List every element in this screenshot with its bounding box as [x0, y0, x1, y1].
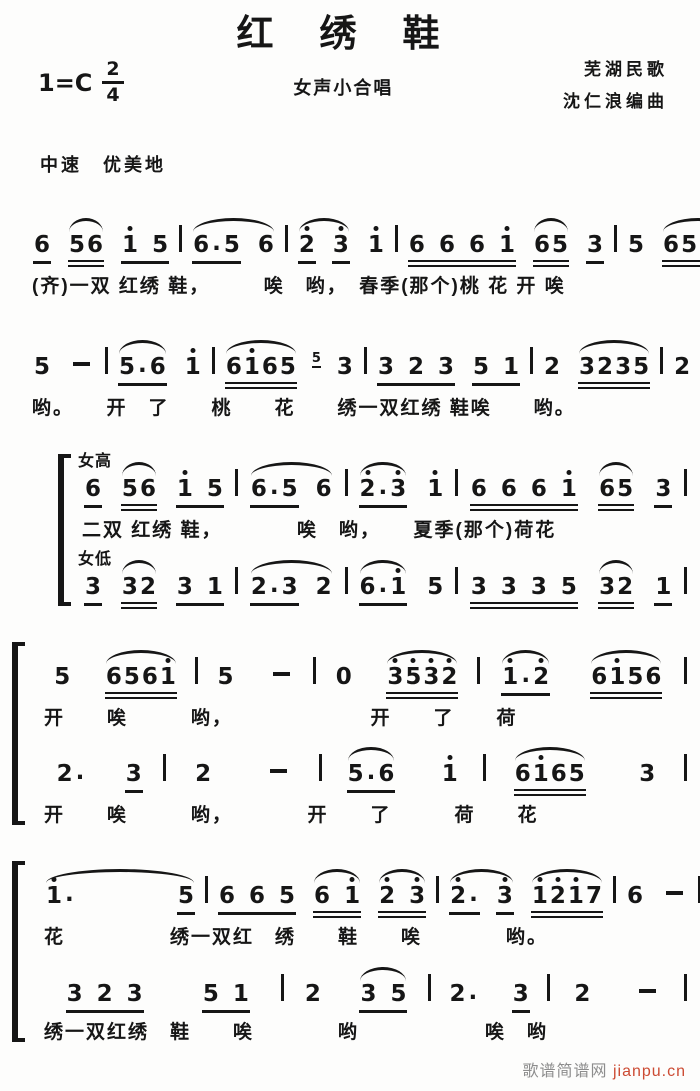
note-group: 6661 [470, 478, 578, 511]
note-digit: 3 [126, 763, 142, 786]
note-digit: 3 [360, 983, 376, 1006]
note-digit: 1 [244, 356, 260, 379]
note-digit: 1 [122, 234, 138, 257]
note-group: 1.2 [501, 666, 550, 696]
credits: 芜湖民歌 沈仁浪编曲 [563, 54, 668, 117]
slur-group: 6.56 [250, 478, 333, 508]
note-group: 51 [202, 983, 250, 1013]
note-group: 3 [586, 234, 604, 264]
note-digit: 1 [503, 356, 519, 379]
tempo-marking: 中速 优美地 [40, 151, 690, 177]
note-digit: 5 [627, 666, 643, 689]
note-digit: 2 [251, 576, 267, 599]
note-group: 6 [84, 478, 102, 508]
note-digit: 3 [177, 576, 193, 599]
note-group: 2 [315, 576, 333, 599]
note-digit: 6 [534, 234, 550, 257]
note-group: 2. [449, 983, 480, 1006]
note-digit: 3 [85, 576, 101, 599]
barline [660, 347, 663, 374]
note-digit: 5 [390, 983, 406, 1006]
measure: 56561 [620, 234, 700, 267]
note-digit: 5 [280, 356, 296, 379]
note-digit: 6 [219, 885, 235, 908]
note-group: 1 [367, 234, 385, 257]
note-group: 3 [638, 763, 656, 786]
rhythm-dot: . [270, 476, 279, 499]
octave-dot-icon [538, 755, 543, 760]
note-digit: 2 [617, 576, 633, 599]
rhythm-dot: . [65, 883, 74, 906]
note-digit: 3 [387, 666, 403, 689]
note-digit: 3 [587, 234, 603, 257]
note-digit: 3 [513, 983, 529, 1006]
score: 656156.56231666165356561(齐)一双 红绣 鞋， 唉 哟，… [12, 203, 690, 1045]
note-group: 5 [426, 576, 444, 599]
note-group: 2 [304, 983, 322, 1006]
system: 55.6161655332351232352哟。 开 了 桃 花 绣一双红绣 鞋… [12, 325, 690, 421]
note-digit: 6 [515, 763, 531, 786]
notation-line: 1.566561232.312176 [38, 854, 690, 918]
barline [163, 754, 166, 781]
credit-arranger: 沈仁浪编曲 [563, 86, 668, 117]
octave-dot-icon [393, 658, 398, 663]
rhythm-dot: . [469, 981, 478, 1004]
note-digit: 6 [551, 763, 567, 786]
octave-dot-icon [555, 877, 560, 882]
octave-dot-icon [456, 877, 461, 882]
note-digit: 6 [439, 234, 455, 257]
barline [364, 347, 367, 374]
octave-dot-icon [350, 877, 355, 882]
octave-dot-icon [338, 226, 343, 231]
note-digit: 6 [262, 356, 278, 379]
octave-dot-icon [52, 877, 57, 882]
note-group: 6 [626, 885, 644, 908]
notation-line: 55.6161655332351232352 [26, 325, 690, 389]
measure: 6 [619, 885, 695, 908]
lyrics-line: 哟。 开 了 桃 花 绣一双红绣 鞋唉 哟。 [32, 398, 690, 421]
note-group: 2. [449, 885, 480, 915]
system-content: 565615035321.26156开 唉 哟， 开 了 荷2.325.6161… [12, 635, 690, 829]
note-digit: 5 [617, 478, 633, 501]
notation-line: 565615035321.26156 [38, 635, 690, 699]
note-digit: 2 [450, 885, 466, 908]
measure: 2.31 [351, 478, 453, 508]
note-digit: 6 [599, 478, 615, 501]
notation-line: 656156.562.316661653 [76, 447, 690, 511]
note-digit: 1 [442, 763, 458, 786]
note-digit: 5 [681, 234, 697, 257]
note-digit: 6 [106, 666, 122, 689]
barline [613, 876, 616, 903]
barline [684, 469, 687, 496]
note-digit: 1 [499, 234, 515, 257]
note-digit: 3 [639, 763, 655, 786]
note-digit: 3 [409, 885, 425, 908]
note-group: 2.3 [250, 576, 299, 606]
note-group: 31 [176, 576, 224, 606]
note-digit: 3 [378, 356, 394, 379]
note-digit: 6 [409, 234, 425, 257]
note-digit: 3 [127, 983, 143, 1006]
voice-row: 55.6161655332351232352 [26, 325, 690, 389]
note-digit: 6 [226, 356, 242, 379]
note-group: 23 [378, 885, 426, 918]
note-digit: 2 [441, 666, 457, 689]
note-digit: 3 [337, 356, 353, 379]
measure: 5.61 [325, 763, 480, 793]
octave-dot-icon [502, 877, 507, 882]
note-group: 5 [177, 885, 195, 915]
system: 565615035321.26156开 唉 哟， 开 了 荷2.325.6161… [12, 635, 690, 829]
sheet-music-page: { "header": { "title": "红绣鞋", "key_signa… [0, 0, 700, 1091]
ensemble-label: 女声小合唱 [293, 74, 393, 100]
note-group: 1. [45, 885, 76, 908]
measure: 6.56 [185, 234, 282, 264]
note-group: 5 [53, 666, 71, 689]
octave-dot-icon [504, 226, 509, 231]
note-digit: 5 [207, 478, 223, 501]
voice-bracket [12, 864, 27, 1039]
note-group: 6165 [225, 356, 297, 389]
note-digit: 6 [663, 234, 679, 257]
octave-dot-icon [573, 877, 578, 882]
dash-note [666, 891, 683, 895]
note-group: 323 [66, 983, 144, 1013]
note-group: 6661 [408, 234, 516, 267]
note-group: 6.5 [192, 234, 241, 264]
measure: 231 [291, 234, 392, 264]
measure: 32351 [38, 983, 278, 1013]
note-group [265, 777, 292, 781]
note-digit: 3 [122, 576, 138, 599]
octave-dot-icon [385, 877, 390, 882]
note-digit: 5 [569, 763, 585, 786]
measure: 6656123 [211, 885, 433, 918]
note-digit: 1 [532, 885, 548, 908]
rhythm-dot: . [138, 354, 147, 377]
note-digit: 1 [160, 666, 176, 689]
barline [281, 974, 284, 1001]
note-digit: 6 [531, 478, 547, 501]
note-digit: 1 [655, 576, 671, 599]
note-group: 5.6 [118, 356, 167, 386]
note-digit: 6 [360, 576, 376, 599]
slur-group: 23 [298, 234, 350, 264]
note-digit: 1 [185, 356, 201, 379]
voice-row: 565615035321.26156 [38, 635, 690, 699]
note-digit: 6 [471, 478, 487, 501]
octave-dot-icon [396, 470, 401, 475]
note-digit: 3 [333, 234, 349, 257]
note-group: 32 [121, 576, 157, 609]
note-digit: 2 [305, 983, 321, 1006]
octave-dot-icon [566, 470, 571, 475]
barline [477, 657, 480, 684]
note-group: 1217 [531, 885, 603, 918]
system: 女高656156.562.316661653二双 红绣 鞋， 唉 哟， 夏季(那… [12, 447, 690, 609]
measure: 6.15 [351, 576, 453, 606]
note-digit: 1 [502, 666, 518, 689]
octave-dot-icon [508, 658, 513, 663]
note-group: 6.5 [250, 478, 299, 508]
note-digit: 3 [67, 983, 83, 1006]
octave-dot-icon [249, 348, 254, 353]
barline [205, 876, 208, 903]
note-group: 3 [654, 478, 672, 508]
octave-dot-icon [447, 755, 452, 760]
notation-line: 332312.326.153335321 [76, 545, 690, 609]
measure: 2.32 [241, 576, 342, 606]
rhythm-dot: . [76, 761, 85, 784]
slur-group: 2.3 [449, 885, 514, 915]
note-group: 35 [359, 983, 407, 1013]
barline [313, 657, 316, 684]
barline [455, 469, 458, 496]
barline [684, 657, 687, 684]
octave-dot-icon [537, 877, 542, 882]
note-digit: 1 [368, 234, 384, 257]
note-group: 2. [56, 763, 87, 786]
measure: 5 [201, 666, 310, 689]
octave-dot-icon [190, 348, 195, 353]
note-group: 6 [257, 234, 275, 257]
octave-dot-icon [365, 470, 370, 475]
slur-group: 6.56 [192, 234, 275, 264]
barline [319, 754, 322, 781]
octave-dot-icon [128, 226, 133, 231]
note-group: 1 [184, 356, 202, 379]
slur-group: 2.32 [250, 576, 333, 606]
note-digit: 6 [150, 356, 166, 379]
note-group: 3 [84, 576, 102, 606]
lyrics-line: 绣一双红绣 鞋 唉 哟 唉 哟 [44, 1022, 690, 1045]
rhythm-dot: . [521, 664, 530, 687]
note-digit: 2 [360, 478, 376, 501]
note-group: 1 [426, 478, 444, 501]
note-digit: 7 [586, 885, 602, 908]
note-group: 5 [217, 666, 235, 689]
note-group: 3 [125, 763, 143, 793]
note-group: 65 [598, 478, 634, 511]
lyrics-line: 开 唉 哟， 开 了 荷 花 [44, 805, 690, 828]
measure: 65615 [26, 234, 176, 267]
barline [614, 225, 617, 252]
lyrics-line: 开 唉 哟， 开 了 荷 [44, 708, 690, 731]
note-digit: 5 [405, 666, 421, 689]
measure: 33231 [76, 576, 232, 609]
octave-dot-icon [415, 877, 420, 882]
barline [285, 225, 288, 252]
note-group: 2 [298, 234, 316, 264]
barline [105, 347, 108, 374]
octave-dot-icon [165, 658, 170, 663]
barline [428, 974, 431, 1001]
time-signature-numerator: 2 [102, 60, 123, 84]
note-digit: 6 [378, 763, 394, 786]
note-group: 3235 [578, 356, 650, 389]
note-digit: 6 [316, 478, 332, 501]
system-content: 656156.56231666165356561(齐)一双 红绣 鞋， 唉 哟，… [12, 203, 690, 299]
note-group: 15 [121, 234, 169, 264]
note-digit: 5 [312, 352, 321, 368]
note-digit: 1 [390, 576, 406, 599]
barline [547, 974, 550, 1001]
measure: 6661653 [401, 234, 611, 267]
note-digit: 5 [633, 356, 649, 379]
barline [395, 225, 398, 252]
note-digit: 2 [450, 983, 466, 1006]
barline [455, 567, 458, 594]
note-group: 6561 [105, 666, 177, 699]
barline [684, 567, 687, 594]
note-digit: 6 [645, 666, 661, 689]
measure: 03532 [319, 666, 473, 699]
note-digit: 5 [279, 885, 295, 908]
note-group: 61 [313, 885, 361, 918]
header-row: 1=C 2 4 女声小合唱 芜湖民歌 沈仁浪编曲 [38, 60, 668, 117]
note-group: 1 [654, 576, 672, 606]
measure: 5.61 [111, 356, 209, 386]
note-group: 3 [332, 234, 350, 264]
note-digit: 3 [599, 576, 615, 599]
barline [345, 469, 348, 496]
note-digit: 6 [249, 885, 265, 908]
note-digit: 2 [597, 356, 613, 379]
note-group: 1 [441, 763, 459, 786]
lyrics-line: (齐)一双 红绣 鞋， 唉 哟， 春季(那个)桃 花 开 唉 [32, 276, 690, 299]
note-digit: 2 [57, 763, 73, 786]
note-group [268, 680, 295, 684]
measure: 6.56 [241, 478, 342, 508]
note-group: 2 [543, 356, 561, 379]
measure: 2 [553, 983, 681, 1006]
note-group: 2.3 [359, 478, 408, 508]
note-group: 6.1 [359, 576, 408, 606]
note-digit: 6 [501, 478, 517, 501]
notation-line: 323512352.32 [38, 952, 690, 1013]
note-digit: 1 [427, 478, 443, 501]
barline [235, 469, 238, 496]
note-digit: 5 [628, 234, 644, 257]
measure: 65615 [76, 478, 232, 511]
measure: 32351 [370, 356, 527, 386]
note-digit: 5 [427, 576, 443, 599]
note-digit: 1 [46, 885, 62, 908]
page-title: 红绣鞋 [12, 12, 690, 56]
octave-dot-icon [396, 568, 401, 573]
rhythm-dot: . [367, 761, 376, 784]
note-group: 3335 [470, 576, 578, 609]
note-group: 56 [121, 478, 157, 511]
rhythm-dot: . [379, 574, 388, 597]
measure: 5 [26, 356, 102, 379]
note-group: 5 [33, 356, 51, 379]
dash-note [73, 362, 90, 366]
note-digit: 6 [314, 885, 330, 908]
note-digit: 2 [97, 983, 113, 1006]
note-group: 56 [68, 234, 104, 267]
note-group: 323 [377, 356, 455, 386]
note-group: 15 [176, 478, 224, 508]
barline [530, 347, 533, 374]
system-content: 女高656156.562.316661653二双 红绣 鞋， 唉 哟， 夏季(那… [12, 447, 690, 609]
dash-note [639, 989, 656, 993]
note-digit: 3 [282, 576, 298, 599]
note-digit: 1 [533, 763, 549, 786]
note-group: 32 [598, 576, 634, 609]
measure: 1.5 [38, 885, 202, 915]
octave-dot-icon [304, 226, 309, 231]
note-digit: 5 [348, 763, 364, 786]
note-group: 2 [673, 356, 691, 379]
barline [235, 567, 238, 594]
measure: 235 [287, 983, 425, 1013]
note-group: 5.6 [347, 763, 396, 793]
note-digit: 6 [142, 666, 158, 689]
octave-dot-icon [411, 658, 416, 663]
note-digit: 6 [258, 234, 274, 257]
system-content: 55.6161655332351232352哟。 开 了 桃 花 绣一双红绣 鞋… [12, 325, 690, 421]
note-group: 51 [472, 356, 520, 386]
note-digit: 6 [140, 478, 156, 501]
system: 656156.56231666165356561(齐)一双 红绣 鞋， 唉 哟，… [12, 203, 690, 299]
barline [345, 567, 348, 594]
note-digit: 3 [579, 356, 595, 379]
note-group: 6 [33, 234, 51, 264]
note-digit: 3 [471, 576, 487, 599]
note-digit: 3 [655, 478, 671, 501]
note-digit: 6 [627, 885, 643, 908]
rhythm-dot: . [270, 574, 279, 597]
note-digit: 6 [469, 234, 485, 257]
note-digit: 3 [497, 885, 513, 908]
note-digit: 6 [85, 478, 101, 501]
note-digit: 2 [316, 576, 332, 599]
barline [195, 657, 198, 684]
voice-bracket [58, 457, 73, 603]
note-group: 0 [335, 666, 353, 689]
time-signature: 2 4 [102, 60, 123, 105]
note-digit: 5 [69, 234, 85, 257]
octave-dot-icon [429, 658, 434, 663]
measure: 2.31217 [442, 885, 610, 918]
note-group: 6 [315, 478, 333, 501]
note-digit: 1 [233, 983, 249, 1006]
watermark-url: jianpu.cn [613, 1063, 686, 1080]
time-signature-denominator: 4 [102, 84, 123, 105]
voice-label: 女低 [78, 545, 120, 569]
rhythm-dot: . [379, 476, 388, 499]
note-digit: 2 [574, 983, 590, 1006]
octave-dot-icon [182, 470, 187, 475]
voice-row: 女低332312.326.153335321 [76, 545, 690, 609]
measure: 2 [666, 356, 700, 379]
note-digit: 3 [390, 478, 406, 501]
lyrics-line: 二双 红绣 鞋， 唉 哟， 夏季(那个)荷花 [82, 520, 690, 543]
note-group: 3 [512, 983, 530, 1013]
note-digit: 5 [54, 666, 70, 689]
note-digit: 6 [87, 234, 103, 257]
note-digit: 1 [609, 666, 625, 689]
dash-note [270, 769, 287, 773]
watermark-site-name: 歌谱简谱网 [522, 1063, 607, 1080]
note-digit: 6 [193, 234, 209, 257]
note-digit: 3 [438, 356, 454, 379]
note-digit: 1 [344, 885, 360, 908]
voice-row: 323512352.32 [38, 952, 690, 1013]
